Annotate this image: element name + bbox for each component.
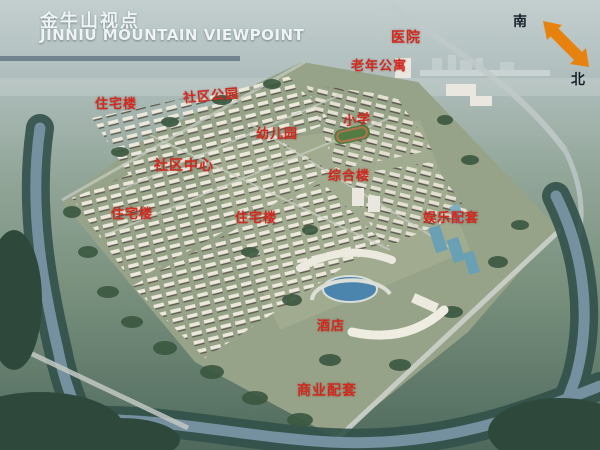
map-label-hotel: 酒店 <box>317 315 345 334</box>
map-label-kindergarten: 幼儿园 <box>256 123 298 142</box>
map-label-residential-1: 住宅楼 <box>95 93 137 112</box>
compass: 南 北 <box>505 5 600 95</box>
map-label-residential-2: 住宅楼 <box>111 203 153 222</box>
map-label-complex-building: 综合楼 <box>328 165 370 184</box>
page-title-en: JINNIU MOUNTAIN VIEWPOINT <box>40 26 304 44</box>
map-label-community-park: 社区公园 <box>182 83 239 107</box>
slide: 金牛山视点 JINNIU MOUNTAIN VIEWPOINT 医院 老年公寓 … <box>0 0 600 450</box>
compass-south-label: 南 <box>513 11 527 31</box>
map-label-entertainment-facilities: 娱乐配套 <box>423 207 479 226</box>
map-label-primary-school: 小学 <box>342 108 372 129</box>
map-label-commercial-facilities: 商业配套 <box>297 380 357 400</box>
map-label-senior-apartments: 老年公寓 <box>351 55 407 74</box>
annotation-layer: 金牛山视点 JINNIU MOUNTAIN VIEWPOINT 医院 老年公寓 … <box>0 0 600 450</box>
compass-north-label: 北 <box>571 69 585 89</box>
map-label-community-center: 社区中心 <box>154 155 214 175</box>
map-label-hospital: 医院 <box>391 27 421 47</box>
map-label-residential-3: 住宅楼 <box>235 207 277 226</box>
